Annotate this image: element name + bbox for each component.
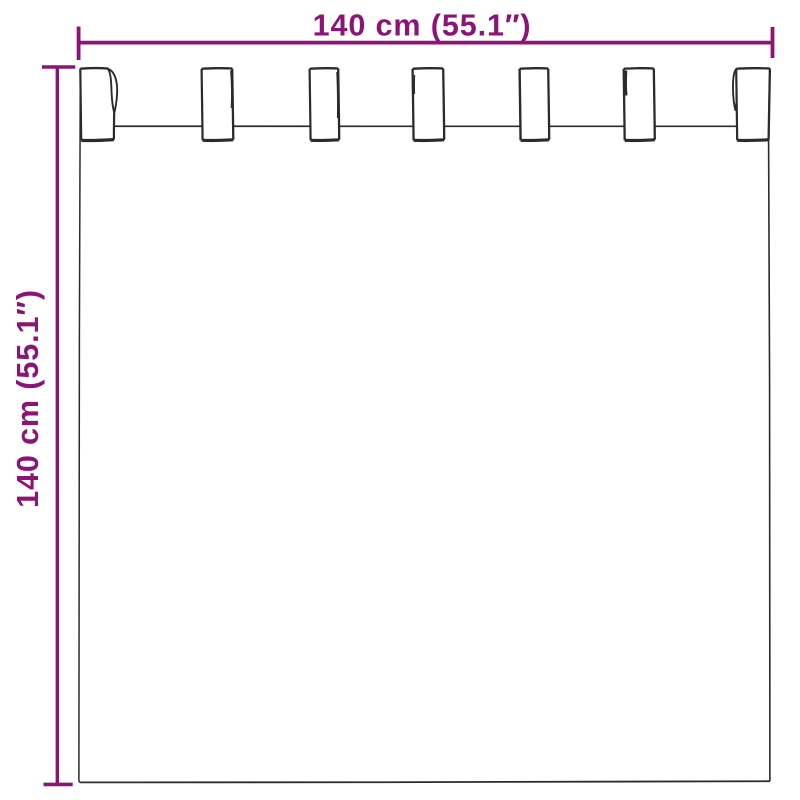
svg-text:140 cm (55.1″): 140 cm (55.1″) [313, 9, 532, 43]
svg-text:140 cm (55.1″): 140 cm (55.1″) [11, 289, 45, 508]
